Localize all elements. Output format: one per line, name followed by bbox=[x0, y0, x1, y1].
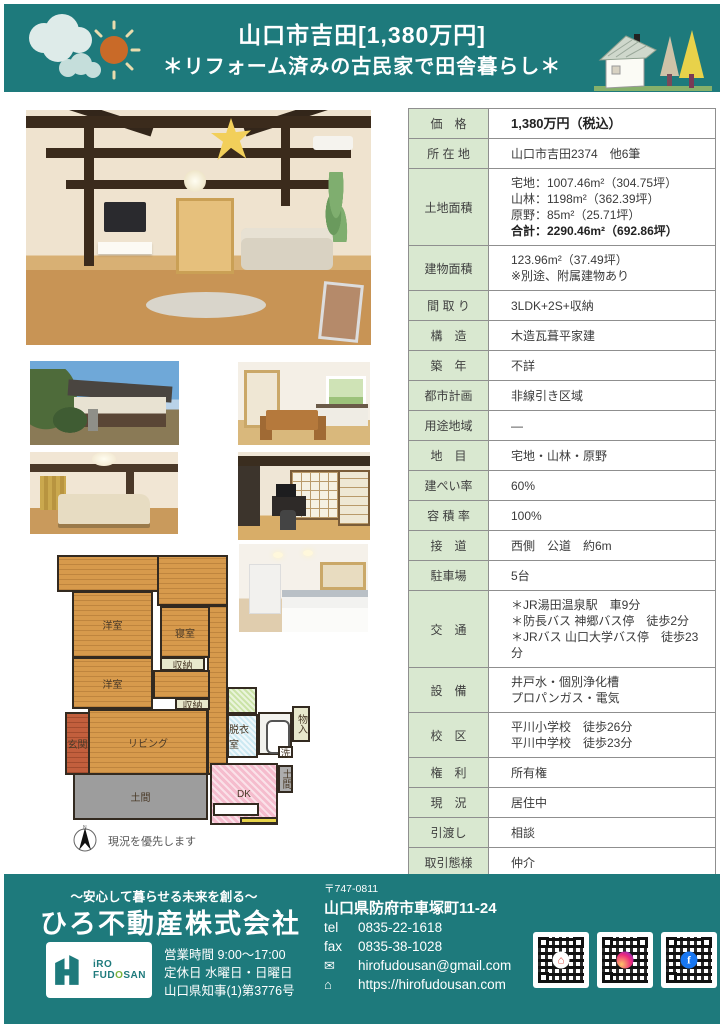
facebook-icon: f bbox=[681, 952, 698, 969]
tel-line: tel0835-22-1618 bbox=[324, 918, 511, 937]
house-icon: ⌂ bbox=[553, 952, 570, 969]
table-row: 交 通＊JR湯田温泉駅 車9分 ＊防長バス 神郷バス停 徒歩2分 ＊JRバス 山… bbox=[409, 591, 715, 668]
room-western-1: 洋室 bbox=[72, 591, 153, 658]
hiro-h-logo-icon bbox=[52, 949, 88, 991]
table-row: 所 在 地山口市吉田2374 他6筆 bbox=[409, 139, 715, 169]
rug bbox=[146, 292, 266, 318]
tel-number: 0835-22-1618 bbox=[358, 920, 442, 935]
sliding-door bbox=[176, 198, 234, 274]
office-info: 営業時間 9:00～17:00 定休日 水曜日・日曜日 山口県知事(1)第377… bbox=[164, 946, 295, 1000]
postal-code: 〒747-0811 bbox=[324, 880, 511, 899]
kitchen-strip bbox=[240, 817, 278, 824]
table-row: 構 造木造瓦葺平家建 bbox=[409, 321, 715, 351]
tv-cabinet bbox=[98, 242, 152, 254]
room-storage-1: 収納 bbox=[160, 657, 205, 671]
table-row: 建ぺい率60% bbox=[409, 471, 715, 501]
room-entrance: 玄関 bbox=[65, 712, 90, 775]
footer: ～安心して暮らせる未来を創る～ ひろ不動産株式会社 iRO FUDOSAN 営業… bbox=[4, 874, 720, 1024]
fax-line: fax0835-38-1028 bbox=[324, 937, 511, 956]
photo-dining bbox=[238, 362, 370, 445]
wood-post bbox=[281, 116, 290, 206]
wood-post bbox=[84, 116, 94, 266]
shoji-screen bbox=[338, 470, 370, 526]
ceiling-beam bbox=[126, 464, 134, 494]
north-compass-icon: N bbox=[70, 824, 100, 854]
office-chair bbox=[280, 510, 296, 530]
room-top-right bbox=[157, 555, 228, 606]
envelope-icon: ✉ bbox=[324, 956, 358, 975]
floor-plan: 洋室 寝室 収納 洋室 収納 玄関 リビング 土間 脱衣室 物入 洗 土間 DK bbox=[55, 553, 313, 829]
svg-text:N: N bbox=[83, 825, 87, 831]
room-corridor bbox=[207, 605, 228, 775]
table-row: 用途地域― bbox=[409, 411, 715, 441]
dining-table bbox=[266, 410, 318, 430]
table-row: 価 格1,380万円（税込） bbox=[409, 109, 715, 139]
table-row: 駐車場5台 bbox=[409, 561, 715, 591]
garden-bush bbox=[50, 405, 90, 435]
room-living: リビング bbox=[88, 709, 208, 775]
table-row: 間 取 り3LDK+2S+収納 bbox=[409, 291, 715, 321]
photo-bedroom bbox=[30, 452, 178, 534]
table-row: 建物面積123.96m²（37.49坪） ※別途、附属建物あり bbox=[409, 246, 715, 291]
photo-exterior bbox=[30, 361, 179, 445]
table-row: 引渡し相談 bbox=[409, 818, 715, 848]
room-doma: 土間 bbox=[73, 773, 208, 820]
room-dressing: 脱衣室 bbox=[227, 714, 258, 758]
property-table: 価 格1,380万円（税込） 所 在 地山口市吉田2374 他6筆 土地面積宅地… bbox=[408, 108, 716, 878]
company-name: ひろ不動産株式会社 bbox=[40, 902, 301, 941]
contact-block: 〒747-0811 山口県防府市車塚町11-24 tel0835-22-1618… bbox=[324, 880, 511, 994]
room-laundry: 洗 bbox=[278, 746, 293, 758]
hanging-plant bbox=[323, 172, 349, 242]
photo-living-room bbox=[26, 110, 371, 345]
instagram-icon bbox=[617, 952, 634, 969]
monitor bbox=[276, 484, 296, 497]
flyer-subtitle: ＊リフォーム済みの古民家で田舎暮らし＊ bbox=[4, 50, 720, 79]
room-western-2: 洋室 bbox=[72, 657, 153, 709]
sofa bbox=[241, 228, 333, 270]
ceiling-beam bbox=[238, 456, 370, 466]
room-toilet bbox=[227, 687, 257, 714]
business-hours: 営業時間 9:00～17:00 bbox=[164, 946, 295, 964]
table-row: 接 道西側 公道 約6m bbox=[409, 531, 715, 561]
logo-line1: iRO bbox=[93, 959, 146, 970]
table-row: 取引態様仲介 bbox=[409, 848, 715, 877]
plan-note: 現況を優先します bbox=[108, 833, 196, 849]
company-logo: iRO FUDOSAN bbox=[46, 942, 152, 998]
table-row: 設 備井戸水・個別浄化槽 プロパンガス・電気 bbox=[409, 668, 715, 713]
room-bedroom: 寝室 bbox=[160, 606, 210, 658]
room-doma-small: 土間 bbox=[278, 765, 293, 793]
table-row: 都市計画非線引き区域 bbox=[409, 381, 715, 411]
website-line[interactable]: ⌂https://hirofudousan.com bbox=[324, 975, 511, 994]
dark-shelf bbox=[238, 466, 260, 526]
wall-tv bbox=[104, 202, 146, 232]
email-address: hirofudousan@gmail.com bbox=[358, 958, 511, 973]
header-banner: 山口市吉田[1,380万円] ＊リフォーム済みの古民家で田舎暮らし＊ bbox=[4, 4, 720, 92]
home-icon: ⌂ bbox=[324, 975, 358, 994]
qr-codes: ⌂ f bbox=[533, 932, 717, 988]
room-corridor bbox=[153, 670, 210, 699]
ceiling-light bbox=[92, 452, 116, 466]
table-row: 築 年不詳 bbox=[409, 351, 715, 381]
table-row: 現 況居住中 bbox=[409, 788, 715, 818]
pendant-lamp bbox=[184, 170, 206, 192]
table-row: 地 目宅地・山林・原野 bbox=[409, 441, 715, 471]
qr-instagram bbox=[597, 932, 653, 988]
website-url: https://hirofudousan.com bbox=[358, 977, 506, 992]
room-closet: 物入 bbox=[292, 706, 310, 742]
leaning-picture bbox=[318, 281, 364, 343]
address: 山口県防府市車塚町11-24 bbox=[324, 899, 511, 918]
closed-days: 定休日 水曜日・日曜日 bbox=[164, 964, 295, 982]
table-row: 容 積 率100% bbox=[409, 501, 715, 531]
qr-facebook: f bbox=[661, 932, 717, 988]
fax-number: 0835-38-1028 bbox=[358, 939, 442, 954]
photo-workspace bbox=[238, 452, 370, 540]
email-line[interactable]: ✉hirofudousan@gmail.com bbox=[324, 956, 511, 975]
bed bbox=[58, 494, 150, 524]
air-conditioner bbox=[313, 136, 353, 150]
logo-line2: FUDOSAN bbox=[93, 970, 146, 981]
ceiling-beam bbox=[26, 116, 371, 128]
window bbox=[320, 562, 366, 590]
qr-website: ⌂ bbox=[533, 932, 589, 988]
license-number: 山口県知事(1)第3776号 bbox=[164, 982, 295, 1000]
table-row: 土地面積宅地：1007.46m²（304.75坪） 山林：1198m²（362.… bbox=[409, 169, 715, 246]
stone-lantern bbox=[88, 409, 98, 431]
table-row: 権 利所有権 bbox=[409, 758, 715, 788]
table-row: 校 区平川小学校 徒歩26分 平川中学校 徒歩23分 bbox=[409, 713, 715, 758]
kitchen-sink bbox=[213, 803, 259, 816]
flyer-page: 山口市吉田[1,380万円] ＊リフォーム済みの古民家で田舎暮らし＊ bbox=[0, 0, 724, 1024]
flyer-title: 山口市吉田[1,380万円] bbox=[4, 16, 720, 50]
